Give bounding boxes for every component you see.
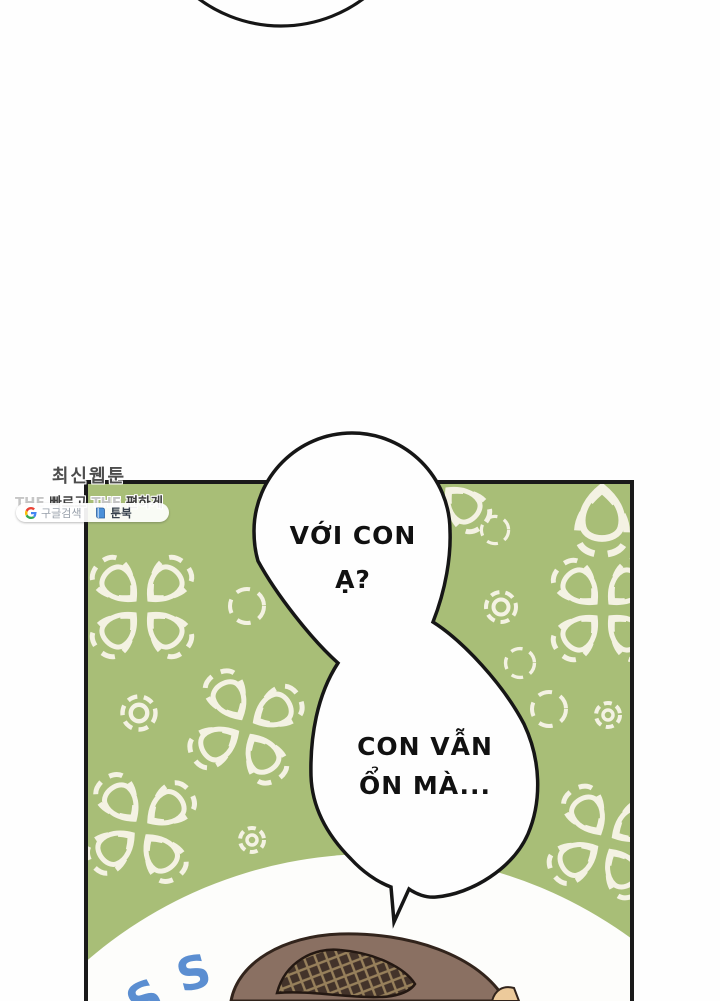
speech-line: ỔN MÀ... [325, 766, 525, 805]
toonbook-icon [95, 507, 106, 519]
previous-bubble-arc [0, 0, 720, 60]
watermark: 최신웹툰 THE 빠르고 THE 편하게 구글검색 툰북 [0, 462, 190, 511]
speech-line: Ạ? [253, 558, 453, 602]
watermark-title: 최신웹툰 [0, 462, 178, 488]
search-pill: 구글검색 툰북 [16, 503, 169, 522]
google-g-icon [25, 507, 37, 519]
speech-text-top: VỚI CON Ạ? [253, 514, 453, 602]
speech-text-bottom: CON VẪN ỔN MÀ... [325, 727, 525, 805]
google-search-label: 구글검색 [41, 505, 81, 521]
speech-line: CON VẪN [325, 727, 525, 766]
speech-line: VỚI CON [253, 514, 453, 558]
toonbook-label: 툰북 [110, 505, 131, 521]
